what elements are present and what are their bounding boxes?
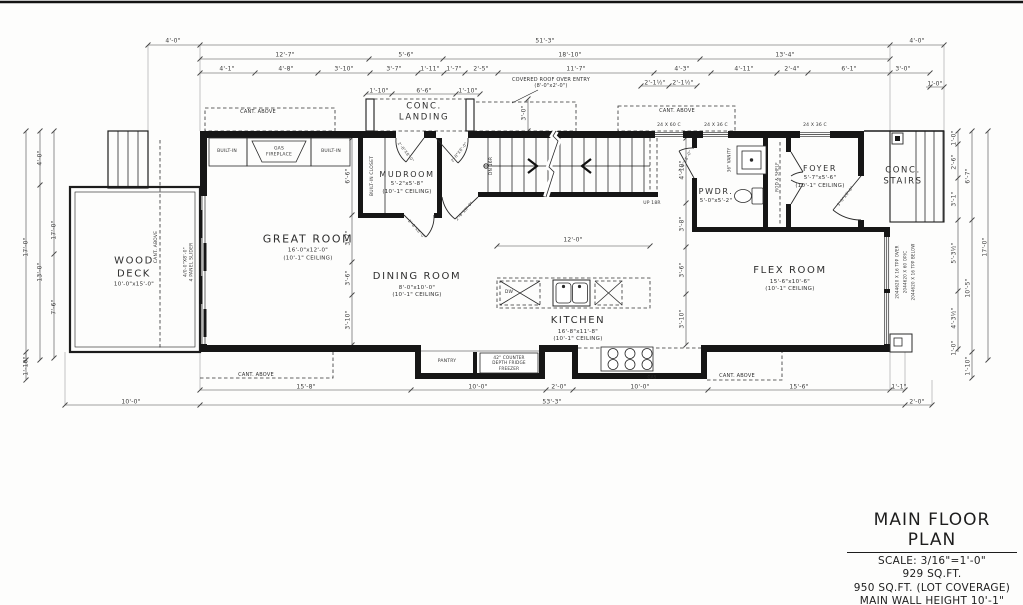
room-name: FOYER [803,164,837,174]
doors [396,138,861,237]
annotation-label: 2044620 X 16 TPP BELOW [911,244,916,301]
dim-label: 15'-8" [296,383,315,391]
annotation-label: 2044620 X 60 OP/C [903,251,908,294]
annotation-label: 24 X 60 C [657,123,681,129]
dim-label: 17'-0" [22,237,30,256]
dim-label: 1'-0" [950,340,958,355]
dim-label: 3'-6" [344,270,352,285]
dim-label: 2'-6" [950,154,958,169]
room-size: 5'-7"x5'-6" [804,175,837,182]
dim-label: 6'-6" [344,168,352,183]
landing-rail-left [366,99,374,131]
dim-label: 10'-0" [468,383,487,391]
dim-label: 3'-1" [950,191,958,206]
window-24x36-b [800,132,830,136]
dim-label: 4'-11" [734,65,753,73]
sheet-scale: SCALE: 3/16"=1'-0" [847,555,1017,567]
room-ceiling: (10'-1" CEILING) [283,255,332,262]
dim-label: 1'-1" [891,383,906,391]
dim-label: 4'-3" [674,65,689,73]
room-name: FLEX ROOM [753,265,826,278]
toilet-tank [752,188,763,204]
island-sink [553,280,590,306]
landing-rail-right [466,99,474,131]
room-name: CONC. STAIRS [883,165,922,186]
dim-label: 4'-0" [36,150,44,165]
faucet-dot-left [562,285,564,287]
floor-plan-sheet: MAIN FLOOR PLAN SCALE: 3/16"=1'-0" 929 S… [0,0,1023,605]
room-name: MUDROOM [379,170,434,180]
room-ceiling: (10'-1" CEILING) [795,183,844,190]
dim-label: 1'-0" [950,130,958,145]
annotation-label: BUILT-IN CLOSET [370,156,376,196]
dim-label: 13'-4" [775,51,794,59]
dim-label: 1'-10" [22,356,30,375]
room-label-great-room: GREAT ROOM16'-0"x12'-0"(10'-1" CEILING) [263,232,353,262]
dim-label: 17'-0" [981,237,989,256]
room-name: CONC. LANDING [399,101,449,122]
annotation-label: 2044620 X 16 TPP OVER [895,245,900,298]
dim-label: 4'-1" [219,65,234,73]
room-size: 5'-2"x5'-8" [391,181,424,188]
dim-label: 11'-7" [566,65,585,73]
dim-label: 3'-10" [334,65,353,73]
annotation-label: 42" COUNTER DEPTH FRIDGE FREEZER [492,355,526,371]
corner-notch [890,334,912,352]
dim-label: 18'-10" [558,51,581,59]
room-name: WOOD DECK [114,256,154,281]
dim-label: 1'-10" [458,87,477,95]
annotation-label: DN 16R [489,157,495,175]
annotation-label: 24 X 36 C [704,123,728,129]
annotation-label: PANTRY [438,359,456,365]
dim-label: 1'-11" [420,65,439,73]
annotation-label: 24 X 36 C [803,123,827,129]
room-ceiling: (10'-1" CEILING) [392,292,441,299]
annotation-label: DW [505,290,513,296]
dim-label: 53'-3" [542,398,561,406]
dim-label: 2'-5" [473,65,488,73]
room-label-wood-deck: WOOD DECK10'-0"x15'-0" [114,256,154,289]
dim-label: 4'-8" [278,65,293,73]
room-size: 16'-0"x12'-0" [288,247,328,254]
dim-label: 4'-0" [165,37,180,45]
stair-post-core [895,136,900,141]
dim-label: 2'-4" [784,65,799,73]
dim-label: 4'-0" [909,37,924,45]
annotation-label: CANT. ABOVE [240,109,276,115]
dim-label: 17'-0" [50,220,58,239]
room-label-kitchen: KITCHEN16'-8"x11'-8"(10'-1" CEILING) [551,315,606,343]
dim-label: 6'-6" [416,87,431,95]
toilet-bowl [735,190,752,203]
room-size: 10'-0"x15'-0" [114,282,154,289]
line [118,131,138,187]
dim-label: 3'-7" [386,65,401,73]
dim-label: 4'-3½" [950,307,958,328]
dim-label: 1'-7" [446,65,461,73]
room-size: 15'-6"x10'-6" [770,278,810,285]
dim-label: 7'-6" [50,299,58,314]
room-size: 5'-0"x5'-2" [700,198,733,205]
dim-label: 10'-0" [630,383,649,391]
annotation-label: GAS [648,375,657,380]
room-label-pwdr: PWDR.5'-0"x5'-2" [699,187,734,205]
dim-label: 1'-10" [964,356,972,375]
annotation-label: UP 18R [643,201,661,207]
flex-window-upper [885,237,889,289]
dim-label: 10'-5" [964,278,972,297]
annotation-label: BUILT-IN [217,149,237,155]
room-ceiling: (10'-1" CEILING) [765,286,814,293]
room-label-flex-room: FLEX ROOM15'-6"x10'-6"(10'-1" CEILING) [753,265,826,293]
stair-up-hidden [650,138,657,192]
annotation-label: CANT. ABOVE [719,373,755,379]
note-leader [512,90,538,103]
window-24x36-a [703,132,728,136]
appliance-x [595,281,622,305]
annotation-label: CANT. ABOVE [238,372,274,378]
sheet-lot-coverage: 950 SQ.FT. (LOT COVERAGE) [847,582,1017,594]
room-label-dining-room: DINING ROOM8'-0"x10'-0"(10'-1" CEILING) [373,271,461,299]
dim-label: 3'-10" [678,309,686,328]
dim-label: 10'-0" [121,398,140,406]
annotation-label: CANT. ABOVE [154,231,160,263]
annotation-label: COVERED ROOF OVER ENTRY (8'-0"x2'-0") [512,77,590,90]
dim-label: 3'-0" [520,105,528,120]
annotation-label: 4/0-0"X8'-0" 4 PANEL SLIDER [183,243,194,282]
dim-label: 3'-8" [678,216,686,231]
room-name: PWDR. [699,187,734,197]
annotation-label: GAS FIREPLACE [266,146,292,157]
dim-label: 6'-1" [841,65,856,73]
dim-label: 5'-3½" [950,242,958,263]
annotation-label: ROD & SHELF [775,162,780,191]
room-ceiling: (10'-1" CEILING) [382,189,431,196]
annotation-label: BUILT-IN [321,149,341,155]
room-label-foyer: FOYER5'-7"x5'-6"(10'-1" CEILING) [795,164,844,190]
sheet-title: MAIN FLOOR PLAN [847,510,1017,553]
room-ceiling: (10'-1" CEILING) [553,336,602,343]
room-label-mudroom: MUDROOM5'-2"x5'-8"(10'-1" CEILING) [379,170,434,196]
dim-label: 12'-7" [275,51,294,59]
dim-label: 3'-10" [344,310,352,329]
room-name: GREAT ROOM [263,232,353,246]
dim-label: 1'-0" [927,80,942,88]
dim-label: 1'-10" [369,87,388,95]
dim-label: 3'-6" [678,262,686,277]
dim-label: 12'-0" [563,236,582,244]
faucet-dot-right [578,285,580,287]
room-label-conc-stairs: CONC. STAIRS [883,165,922,186]
annotation-label: CANT. ABOVE [659,108,695,114]
dim-label: 2'-1½" [644,79,665,87]
dim-label: 15'-6" [789,383,808,391]
vanity-faucet [750,159,753,162]
sheet-wall-height: MAIN WALL HEIGHT 10'-1" [847,595,1017,605]
dim-label: 5'-6" [398,51,413,59]
stair-symbols [528,131,591,197]
dim-label: 3'-0" [895,65,910,73]
room-name: DINING ROOM [373,271,461,284]
dim-label: 2'-1½" [672,79,693,87]
sheet-area: 929 SQ.FT. [847,568,1017,580]
dim-label: 2'-0" [551,383,566,391]
dim-label: 51'-3" [535,37,554,45]
room-label-conc-landing: CONC. LANDING [399,101,449,122]
annotation-label: 36" VANITY [727,148,732,172]
title-block: MAIN FLOOR PLAN SCALE: 3/16"=1'-0" 929 S… [847,510,1017,605]
dim-label: 6'-7" [964,168,972,183]
room-name: KITCHEN [551,315,606,328]
window-24x60 [655,132,683,136]
room-size: 16'-8"x11'-8" [558,328,598,335]
flex-window-lower [885,293,889,344]
dim-label: 2'-0" [909,398,924,406]
room-size: 8'-0"x10'-0" [399,284,435,291]
dim-label: 13'-0" [36,262,44,281]
pantry-divider [473,352,477,373]
line [488,138,644,192]
